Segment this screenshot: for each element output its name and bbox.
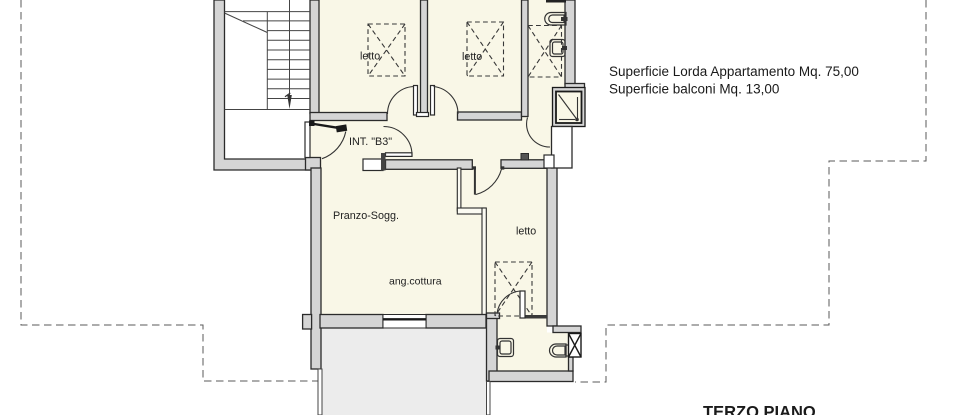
svg-text:INT. "B3": INT. "B3" (349, 136, 392, 148)
svg-text:letto: letto (360, 51, 380, 63)
svg-text:Pranzo-Sogg.: Pranzo-Sogg. (333, 210, 399, 222)
svg-text:letto: letto (462, 51, 482, 63)
svg-text:TERZO PIANO: TERZO PIANO (703, 404, 816, 415)
svg-text:Superficie balconi Mq. 13,00: Superficie balconi Mq. 13,00 (609, 81, 779, 96)
svg-text:Superficie Lorda Appartamento: Superficie Lorda Appartamento Mq. 75,00 (609, 64, 859, 79)
svg-text:letto: letto (516, 226, 536, 238)
svg-text:ang.cottura: ang.cottura (389, 276, 442, 288)
